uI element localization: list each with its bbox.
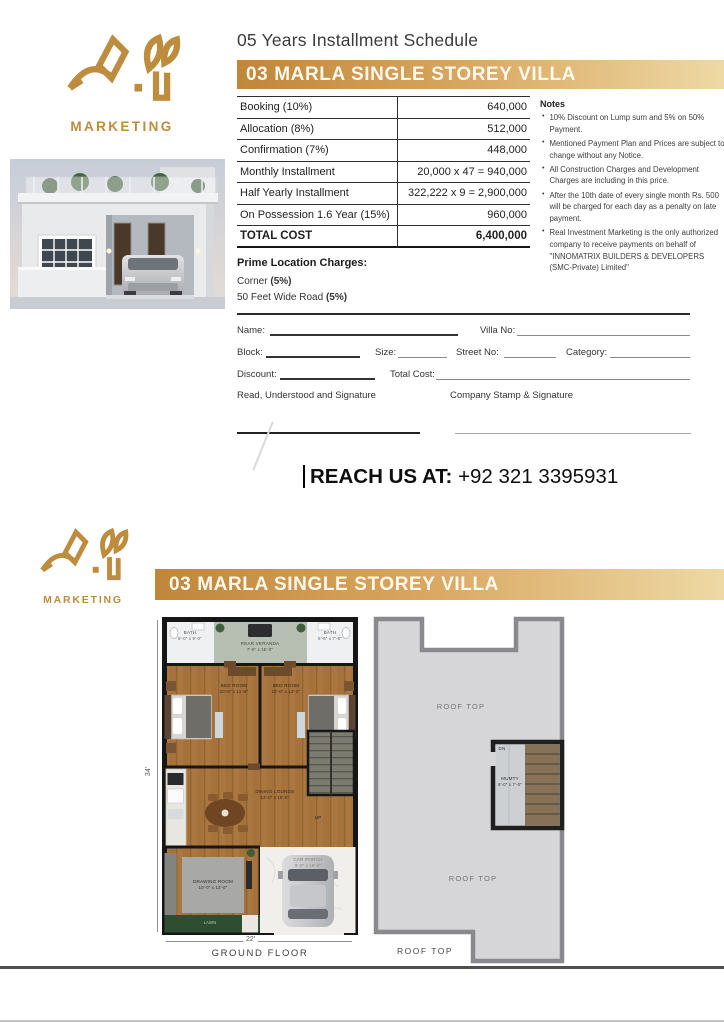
room-label-bath-right: BATH5'-6" x 7'-6" <box>308 630 352 641</box>
table-total-row: TOTAL COST 6,400,000 <box>237 226 530 248</box>
row-label: Monthly Installment <box>240 166 335 178</box>
size-field-line <box>398 357 447 358</box>
note-item: All Construction Charges and Development… <box>540 164 724 187</box>
bed-icon <box>165 695 212 739</box>
brand-name: MARKETING <box>52 119 192 134</box>
ay-monogram-icon <box>63 30 181 110</box>
table-column-divider <box>397 97 398 248</box>
contact-phone: +92 321 3395931 <box>458 465 618 488</box>
room-label-drawing: DRAWING ROOM10'-0" x 13'-0" <box>186 879 240 890</box>
villa-no-field-label: Villa No: <box>480 325 515 336</box>
dimension-height: 34' <box>145 767 152 776</box>
brand-logo-bottom: MARKETING <box>28 525 138 606</box>
villa-banner-title: 03 MARLA SINGLE STOREY VILLA <box>246 64 576 86</box>
row-value: 960,000 <box>487 209 527 221</box>
rooftop-label-lower: ROOF TOP <box>413 874 533 883</box>
notes-panel: Notes 10% Discount on Lump sum and 5% on… <box>540 99 724 276</box>
row-value: 448,000 <box>487 144 527 156</box>
row-label: Confirmation (7%) <box>240 144 329 156</box>
villa-banner: 03 MARLA SINGLE STOREY VILLA <box>237 60 724 89</box>
room-label-bed-left: BED ROOM10'-0" x 11'-6" <box>212 683 256 694</box>
name-field-line <box>270 334 458 336</box>
row-label: Booking (10%) <box>240 101 312 113</box>
signature-right-label: Company Stamp & Signature <box>450 390 573 401</box>
room-label-lawn: LAWN <box>190 920 230 925</box>
table-row: On Possession 1.6 Year (15%) 960,000 <box>237 205 530 227</box>
note-item: After the 10th date of every single mont… <box>540 190 724 225</box>
total-label: TOTAL COST <box>240 230 312 242</box>
page-bottom-edge <box>0 1020 724 1022</box>
section-divider <box>237 313 690 315</box>
prime-location-item: 50 Feet Wide Road (5%) <box>237 290 367 306</box>
row-value: 512,000 <box>487 123 527 135</box>
table-row: Confirmation (7%) 448,000 <box>237 140 530 162</box>
floorplan-banner-title: 03 MARLA SINGLE STOREY VILLA <box>169 574 499 596</box>
contact-label: REACH US AT: <box>303 465 452 488</box>
table-row: Monthly Installment 20,000 x 47 = 940,00… <box>237 162 530 184</box>
total-value: 6,400,000 <box>476 230 527 242</box>
dimension-line-vertical <box>157 620 158 932</box>
prime-location-title: Prime Location Charges: <box>237 257 367 269</box>
signature-line-right <box>455 433 691 434</box>
category-field-line <box>610 357 690 358</box>
table-row: Booking (10%) 640,000 <box>237 97 530 119</box>
row-label: On Possession 1.6 Year (15%) <box>240 209 390 221</box>
row-value: 640,000 <box>487 101 527 113</box>
roof-top-drawing <box>373 616 565 964</box>
ground-floor-caption: GROUND FLOOR <box>190 948 330 959</box>
total-cost-field-line <box>436 379 690 380</box>
table-row: Half Yearly Installment 322,222 x 9 = 2,… <box>237 183 530 205</box>
prime-location-item: Corner (5%) <box>237 274 367 290</box>
size-field-label: Size: <box>375 347 396 358</box>
ay-monogram-icon <box>37 525 129 587</box>
row-label: Half Yearly Installment <box>240 187 349 199</box>
row-label: Allocation (8%) <box>240 123 314 135</box>
stairs-dn-label: DN <box>495 746 509 752</box>
footer-rule <box>0 966 724 969</box>
brand-name: MARKETING <box>28 594 138 606</box>
flyer-page: MARKETING <box>0 0 724 1024</box>
schedule-title: 05 Years Installment Schedule <box>237 30 478 51</box>
room-label-bath-left: BATH6'-0" x 9'-0" <box>168 630 212 641</box>
discount-field-line <box>280 378 375 380</box>
room-label-veranda: REAR VERANDA7'-0" x 15'-0" <box>230 641 290 652</box>
room-label-bed-right: BED ROOM10'-0" x 12'-0" <box>264 683 308 694</box>
ground-floor-plan: BATH6'-0" x 9'-0" REAR VERANDA7'-0" x 15… <box>162 617 358 935</box>
note-item: Mentioned Payment Plan and Prices are su… <box>540 138 724 161</box>
installment-table: Booking (10%) 640,000 Allocation (8%) 51… <box>237 96 530 248</box>
villa-photo <box>10 159 225 309</box>
row-value: 322,222 x 9 = 2,900,000 <box>408 187 527 199</box>
roof-top-plan: ROOF TOP ROOF TOP DN MUMTY8'-0" x 7'-0" … <box>373 616 565 964</box>
room-label-dining: DINING LOUNGE13'-0" x 15'-0" <box>248 789 302 800</box>
brand-logo: MARKETING <box>52 30 192 134</box>
signature-line-left <box>237 432 420 434</box>
note-item: Real Investment Marketing is the only au… <box>540 227 724 274</box>
roof-top-caption: ROOF TOP <box>377 946 473 956</box>
dimension-line-horizontal <box>166 941 352 942</box>
street-no-field-label: Street No: <box>456 347 499 358</box>
decorative-slash <box>252 422 273 471</box>
floorplan-banner: 03 MARLA SINGLE STOREY VILLA <box>155 569 724 600</box>
row-value: 20,000 x 47 = 940,000 <box>417 166 527 178</box>
total-cost-field-label: Total Cost: <box>390 369 435 380</box>
sofa-icon <box>165 853 177 915</box>
name-field-label: Name: <box>237 325 265 336</box>
room-label-up: UP <box>308 815 328 821</box>
category-field-label: Category: <box>566 347 607 358</box>
room-label-porch: CAR PORCH9'-0" x 16'-0" <box>278 857 338 868</box>
dimension-width: 22' <box>243 936 258 943</box>
table-row: Allocation (8%) 512,000 <box>237 119 530 141</box>
rooftop-label-upper: ROOF TOP <box>401 702 521 711</box>
block-field-label: Block: <box>237 347 263 358</box>
street-no-field-line <box>504 357 556 358</box>
villa-render-image <box>10 159 225 309</box>
contact-strip: REACH US AT: +92 321 3395931 <box>303 465 618 489</box>
signature-left-label: Read, Understood and Signature <box>237 390 376 401</box>
dining-table-icon <box>205 792 248 834</box>
discount-field-label: Discount: <box>237 369 277 380</box>
note-item: 10% Discount on Lump sum and 5% on 50% P… <box>540 112 724 135</box>
car-icon <box>122 255 184 297</box>
villa-no-field-line <box>517 335 690 336</box>
prime-location-section: Prime Location Charges: Corner (5%) 50 F… <box>237 257 367 305</box>
notes-title: Notes <box>540 99 724 109</box>
block-field-line <box>266 356 360 358</box>
mumty-label: MUMTY8'-0" x 7'-0" <box>494 776 526 787</box>
